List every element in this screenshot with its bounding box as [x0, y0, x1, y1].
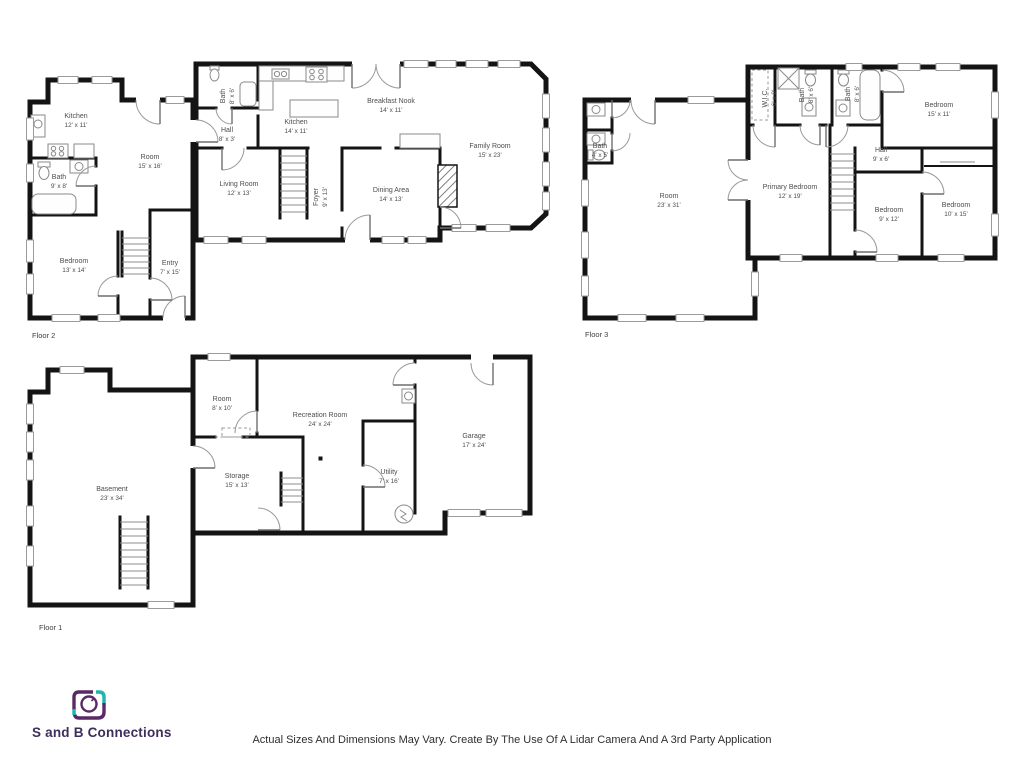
room-label-hall-f3: Hall 9' x 6' — [873, 146, 889, 164]
room-dims: 7' x 16' — [379, 478, 399, 486]
room-dims: 14' x 11' — [284, 128, 307, 136]
room-label-bedroom3-f3: Bedroom 10' x 15' — [942, 201, 970, 219]
room-name: Family Room — [469, 142, 510, 152]
room-dims: 8' x 3' — [219, 136, 235, 144]
room-dims: 17' x 24' — [462, 442, 485, 450]
room-label-bedroom2-f3: Bedroom 9' x 12' — [875, 206, 903, 224]
camera-logo-icon — [66, 684, 112, 724]
room-dims: 14' x 11' — [367, 107, 415, 115]
room-label-bath2-f3: Bath 8' x 6' — [844, 86, 862, 102]
room-name: Basement — [96, 485, 128, 495]
floor-2-plan — [27, 61, 550, 322]
room-name: Hall — [873, 146, 889, 156]
room-label-bath2-f2: Bath 8' x 6' — [219, 88, 237, 104]
floor-3-tag: Floor 3 — [585, 330, 608, 339]
room-label-bath1-f3: Bath 8' x 6' — [798, 87, 816, 103]
room-name: Utility — [379, 468, 399, 478]
room-label-basement-f1: Basement 23' x 34' — [96, 485, 128, 503]
room-name: Recreation Room — [293, 411, 347, 421]
room-name: W.I.C. — [761, 88, 771, 107]
room-label-bath-small-f3: Bath 4' x 5' — [592, 142, 608, 160]
room-dims: 4' x 5' — [592, 152, 608, 160]
room-name: Room — [657, 192, 680, 202]
room-dims: 23' x 31' — [657, 202, 680, 210]
room-dims: 12' x 19' — [763, 193, 817, 201]
floor-2-tag: Floor 2 — [32, 331, 55, 340]
room-name: Breakfast Nook — [367, 97, 415, 107]
room-name: Bath — [219, 88, 229, 104]
room-name: Entry — [160, 259, 180, 269]
room-dims: 24' x 24' — [293, 421, 347, 429]
room-dims: 9' x 6' — [873, 156, 889, 164]
room-name: Bedroom — [60, 257, 88, 267]
room-dims: 15' x 11' — [925, 111, 953, 119]
room-dims: 13' x 14' — [60, 267, 88, 275]
room-dims: 23' x 34' — [96, 495, 128, 503]
room-name: Foyer — [312, 187, 322, 207]
room-label-garage-f1: Garage 17' x 24' — [462, 432, 485, 450]
room-label-room-f3: Room 23' x 31' — [657, 192, 680, 210]
room-name: Living Room — [220, 180, 259, 190]
room-name: Bath — [51, 173, 67, 183]
floor-1-tag: Floor 1 — [39, 623, 62, 632]
floorplan-page: Kitchen 12' x 11' Room 15' x 16' Bath 9'… — [0, 0, 1024, 768]
room-name: Hall — [219, 126, 235, 136]
room-dims: 9' x 8' — [51, 183, 67, 191]
room-name: Room — [212, 395, 232, 405]
room-label-dining-area-f2: Dining Area 14' x 13' — [373, 186, 409, 204]
room-dims: 8' x 6' — [808, 87, 816, 103]
floorplans-drawing — [0, 0, 1024, 768]
disclaimer-text: Actual Sizes And Dimensions May Vary. Cr… — [0, 734, 1024, 746]
room-dims: 9' x 13' — [322, 187, 330, 207]
room-name: Dining Area — [373, 186, 409, 196]
room-dims: 8' x 6' — [854, 86, 862, 102]
room-label-room-f1: Room 8' x 10' — [212, 395, 232, 413]
room-label-kitchen2-f2: Kitchen 14' x 11' — [284, 118, 307, 136]
room-dims: 9' x 12' — [875, 216, 903, 224]
room-dims: 12' x 13' — [220, 190, 259, 198]
room-label-entry-f2: Entry 7' x 15' — [160, 259, 180, 277]
room-name: Primary Bedroom — [763, 183, 817, 193]
room-name: Bedroom — [942, 201, 970, 211]
room-label-room-f2: Room 15' x 16' — [138, 153, 161, 171]
room-dims: 15' x 16' — [138, 163, 161, 171]
room-label-family-room-f2: Family Room 15' x 23' — [469, 142, 510, 160]
room-label-kitchen-f2: Kitchen 12' x 11' — [64, 112, 87, 130]
room-name: Bath — [798, 87, 808, 103]
room-name: Bedroom — [875, 206, 903, 216]
room-dims: 12' x 11' — [64, 122, 87, 130]
room-dims: 14' x 13' — [373, 196, 409, 204]
room-dims: 15' x 13' — [225, 482, 250, 490]
room-dims: 10' x 15' — [942, 211, 970, 219]
room-label-living-room-f2: Living Room 12' x 13' — [220, 180, 259, 198]
room-label-breakfast-nook-f2: Breakfast Nook 14' x 11' — [367, 97, 415, 115]
room-name: Bath — [592, 142, 608, 152]
room-dims: 15' x 23' — [469, 152, 510, 160]
room-label-bath-f2: Bath 9' x 8' — [51, 173, 67, 191]
room-label-recreation-room-f1: Recreation Room 24' x 24' — [293, 411, 347, 429]
room-name: Kitchen — [284, 118, 307, 128]
room-dims: 6' x 8' — [771, 88, 779, 107]
room-name: Garage — [462, 432, 485, 442]
room-name: Kitchen — [64, 112, 87, 122]
floor-1-plan — [27, 354, 531, 609]
room-label-foyer-f2: Foyer 9' x 13' — [312, 187, 330, 207]
room-dims: 8' x 10' — [212, 405, 232, 413]
room-label-hall-f2: Hall 8' x 3' — [219, 126, 235, 144]
room-dims: 7' x 15' — [160, 269, 180, 277]
room-dims: 8' x 6' — [229, 88, 237, 104]
room-name: Bedroom — [925, 101, 953, 111]
room-label-bedroom1-f3: Bedroom 15' x 11' — [925, 101, 953, 119]
room-label-wic-f3: W.I.C. 6' x 8' — [761, 88, 779, 107]
room-label-bedroom-f2: Bedroom 13' x 14' — [60, 257, 88, 275]
room-label-primary-bedroom-f3: Primary Bedroom 12' x 19' — [763, 183, 817, 201]
room-label-utility-f1: Utility 7' x 16' — [379, 468, 399, 486]
room-name: Storage — [225, 472, 250, 482]
room-name: Room — [138, 153, 161, 163]
room-label-storage-f1: Storage 15' x 13' — [225, 472, 250, 490]
room-name: Bath — [844, 86, 854, 102]
